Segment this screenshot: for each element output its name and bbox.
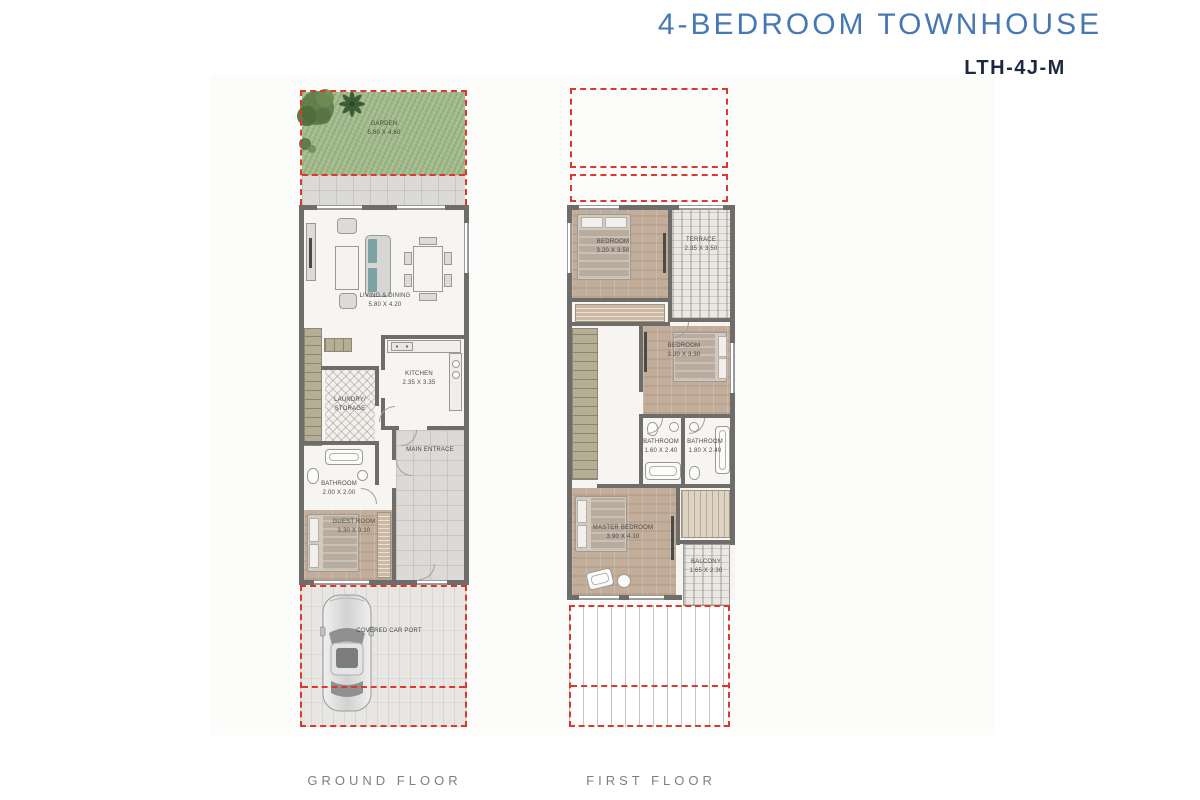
staircase-landing [324,338,352,352]
garden-patio-divider-dashed [302,174,465,176]
pillow [581,217,603,228]
pillow [718,336,727,357]
staircase [572,328,598,480]
wall [668,205,672,318]
guest-room-label: GUEST ROOM 3.30 X 3.10 [319,518,389,536]
pillow [309,518,319,542]
bathroom1-label: BATHROOM 1.60 X 2.40 [637,438,685,456]
laundry-label: LAUNDRY/ STORAGE [327,396,373,414]
bathroom-gf-label: BATHROOM 2.00 X 2.00 [303,480,375,498]
living-dining-label: LIVING & DINING 5.80 X 4.20 [339,292,431,310]
tv-icon [663,233,666,273]
sofa-cushion [368,239,377,263]
dining-table [413,246,443,292]
coffee-table [335,246,359,290]
wall [299,205,304,585]
dining-chair [419,237,437,245]
wall [676,488,680,545]
window [317,205,362,210]
roof-inner-dashed [571,685,728,687]
wall [381,426,399,430]
wall [375,445,379,485]
stool-icon [617,574,631,588]
bedroom1-wardrobe [575,304,665,322]
tv-icon [309,238,312,268]
dining-chair [444,274,452,287]
sink-icon [669,422,679,432]
wall [427,426,469,430]
void-dashed-box [570,88,728,168]
wall [680,540,730,544]
wall [381,335,385,370]
master-bedroom-label: MASTER BEDROOM 3.90 X 4.10 [587,524,659,542]
balcony-label: BALCONY 1.65 X 2.30 [680,558,732,576]
ground-floor-caption: GROUND FLOOR [299,773,470,788]
wall [381,335,469,339]
wall [321,366,379,370]
unit-code: LTH-4J-M [930,57,1100,80]
wall [572,298,668,302]
wall [299,441,379,445]
window [464,223,469,273]
master-wardrobe [681,490,730,538]
terrace-floor [672,210,730,318]
terrace-label: TERRACE 2.35 X 3.50 [673,236,729,254]
kitchen-label: KITCHEN 2.35 X 3.35 [391,370,447,388]
dining-chair [444,252,452,265]
tv-icon [671,516,674,560]
pillow [309,544,319,568]
bathtub [325,449,363,465]
wall [392,430,396,460]
sink-icon [452,360,460,368]
window [567,223,572,273]
window [629,595,664,600]
first-floor-caption: FIRST FLOOR [567,773,735,788]
wall [639,326,643,392]
wall [392,488,396,585]
void-dashed-box [570,174,728,202]
bedroom2-label: BEDROOM 3.30 X 3.30 [655,342,713,360]
car-port-inner-dashed [302,686,465,688]
window [579,205,619,210]
wall [597,484,730,488]
pillow [577,500,587,523]
pillow [577,525,587,548]
window [397,205,445,210]
ground-floor-plan: GARDEN 5.80 X 4.60 LIVING & DINING 5.80 … [299,88,470,733]
tv-icon [644,332,647,372]
window [679,205,723,210]
pillow [605,217,627,228]
main-entrance-label: MAIN ENTRACE [397,446,463,455]
roof-boundary-dashed [569,605,730,727]
sofa-cushion [368,268,377,292]
bedroom1-label: BEDROOM 3.20 X 3.50 [585,238,641,256]
dining-chair [404,274,412,287]
sink-icon [452,371,460,379]
hob-icon [391,342,413,351]
armchair [337,218,357,234]
bathroom2-label: BATHROOM 1.80 X 2.40 [681,438,729,456]
pillow [718,358,727,379]
staircase [304,328,322,446]
wall [572,322,670,326]
window [579,595,619,600]
toilet-icon [689,466,700,480]
bathtub [645,462,681,480]
car-port-boundary-dashed [300,585,467,727]
page-title: 4-BEDROOM TOWNHOUSE [655,8,1105,42]
garden-boundary-dashed [300,90,467,205]
wall [375,366,379,406]
window [730,343,735,393]
first-floor-plan: BEDROOM 3.20 X 3.50 TERRACE 2.35 X 3.50 … [567,88,735,733]
dining-chair [404,252,412,265]
